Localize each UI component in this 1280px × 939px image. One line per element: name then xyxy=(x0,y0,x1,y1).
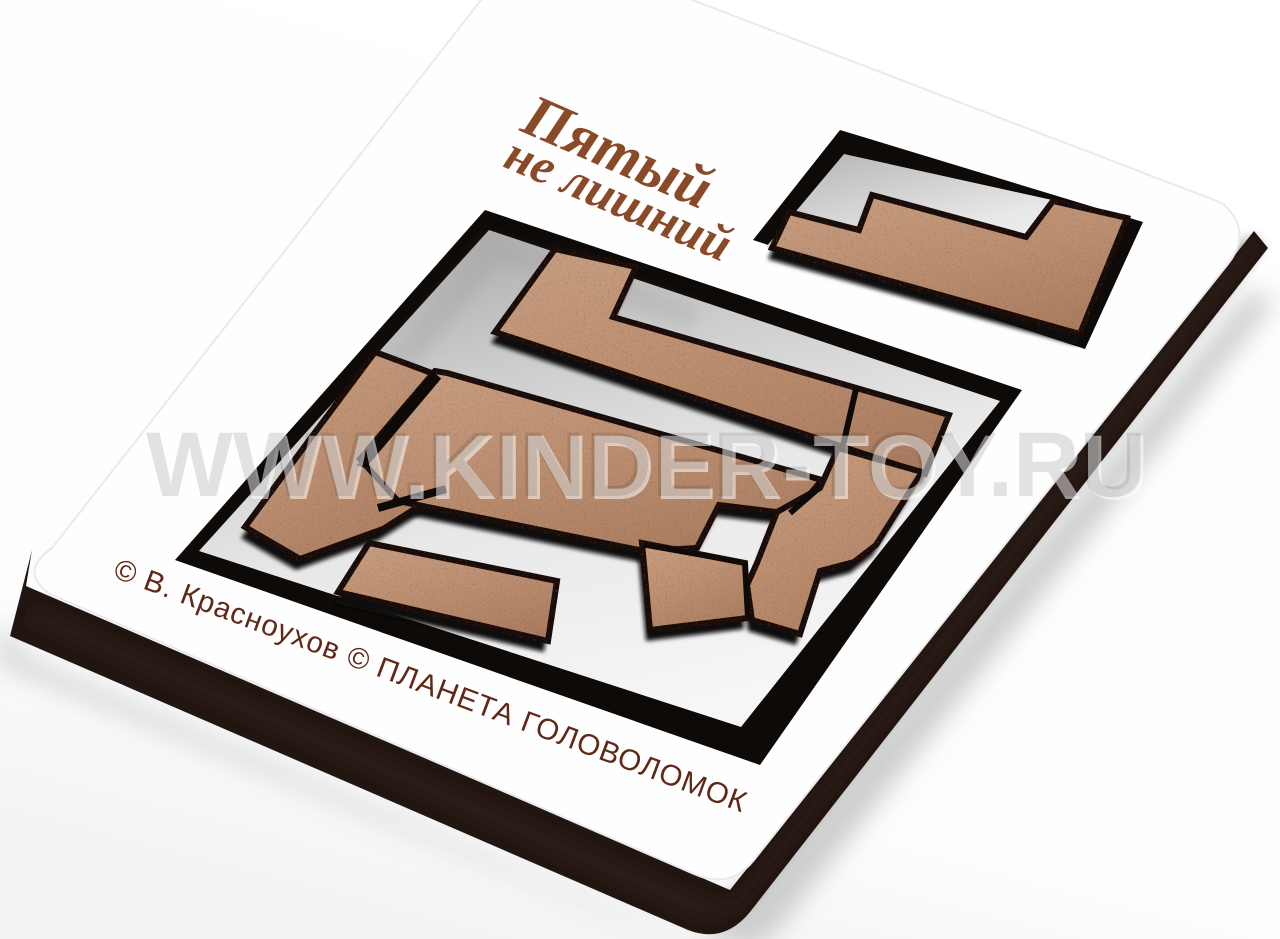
svg-text:WWW.KINDER-TOY.RU: WWW.KINDER-TOY.RU xyxy=(146,414,1146,516)
